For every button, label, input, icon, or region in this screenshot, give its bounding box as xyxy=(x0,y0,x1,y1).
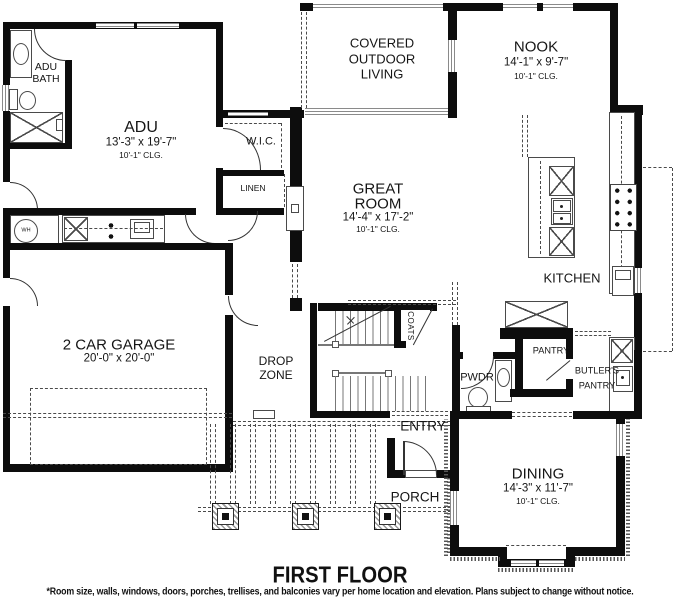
option-dash-right xyxy=(672,168,673,351)
label-adu-bath-1: ADU xyxy=(35,62,57,73)
pantry-cabinet xyxy=(505,301,568,328)
trellis-beam-3 xyxy=(250,424,256,504)
label-entry: ENTRY xyxy=(400,419,446,433)
wall-col-right-upper xyxy=(448,3,457,40)
wall-left-garage xyxy=(3,306,10,466)
fireplace-insert xyxy=(291,204,299,213)
dining-stipple-right xyxy=(626,419,630,556)
window-col-right xyxy=(448,40,457,72)
label-adu: ADU xyxy=(124,120,158,136)
trellis-beam-5 xyxy=(290,424,296,504)
window-nook-2 xyxy=(543,4,573,10)
label-greatroom-clg: 10'-1" CLG. xyxy=(356,225,400,234)
toilet-bowl-adu xyxy=(19,91,36,110)
water-heater-label: WH xyxy=(21,228,30,234)
label-pwdr: PWDR xyxy=(460,373,494,384)
door-arc-hall xyxy=(228,211,258,241)
stair-treads-lower xyxy=(335,376,427,411)
window-adu-top-1 xyxy=(96,23,134,28)
porch-column-3-core xyxy=(384,513,391,520)
door-arc-adu-south xyxy=(185,214,215,244)
window-col-top xyxy=(313,4,444,10)
window-bay-1 xyxy=(511,560,536,566)
trellis-beam-7 xyxy=(330,424,336,504)
wall-bath-right xyxy=(65,60,72,148)
kitchenette-cabinet xyxy=(64,217,88,241)
stair-rail-lower xyxy=(339,372,389,374)
door-arc-adu-bath xyxy=(34,29,66,61)
label-wic: W.I.C. xyxy=(246,137,276,148)
wall-nook-right xyxy=(610,3,618,113)
wall-bath-bottom xyxy=(3,143,72,149)
wall-col-top-left xyxy=(300,3,313,11)
trellis-beam-8 xyxy=(350,424,356,504)
trellis-beam-1 xyxy=(210,424,216,504)
label-dining-clg: 10'-1" CLG. xyxy=(516,497,560,506)
label-nook: NOOK xyxy=(514,40,558,55)
wall-coats-bottom xyxy=(394,341,406,348)
label-linen: LINEN xyxy=(240,184,265,193)
dining-stipple-bay xyxy=(498,568,575,572)
wall-wic-linen-divider xyxy=(223,170,284,176)
label-adu-bath-2: BATH xyxy=(32,74,59,85)
disclaimer-text: *Room size, walls, windows, doors, porch… xyxy=(47,587,634,598)
label-col-1: COVERED xyxy=(350,37,414,50)
sink-drain-2 xyxy=(560,217,563,220)
bath-sink xyxy=(13,43,29,65)
page-title: FIRST FLOOR xyxy=(273,562,408,589)
garage-door-outline xyxy=(30,388,207,465)
opening-dining-cased xyxy=(512,412,572,417)
window-adu-top-2 xyxy=(137,23,179,28)
label-greatroom-dims: 14'-4" x 17'-2" xyxy=(343,212,414,224)
label-dining-dims: 14'-3" x 11'-7" xyxy=(503,483,573,495)
wall-kitchen-right-lower xyxy=(634,293,642,350)
wall-greatroom-west xyxy=(290,107,302,262)
wall-left-upper xyxy=(3,22,10,85)
window-kitchen-right xyxy=(634,268,642,293)
wall-pwdr-left xyxy=(452,325,460,418)
label-col-2: OUTDOOR xyxy=(349,53,415,66)
kitchenette-counter-line xyxy=(64,228,163,229)
wall-pwdr-pantry-divider xyxy=(515,328,523,397)
front-door-leaf xyxy=(403,441,405,475)
opening-greatroom-kitchen xyxy=(452,282,458,325)
opening-kitchen-butlers xyxy=(575,331,611,336)
shower-seat xyxy=(56,119,63,131)
island-cabinet-top xyxy=(549,166,574,196)
label-greatroom-1: GREAT xyxy=(353,182,404,197)
door-arc-adu-entry xyxy=(10,182,38,210)
porch-column-2 xyxy=(292,503,319,530)
label-drop-zone-2: ZONE xyxy=(259,369,292,381)
stair-treads-upper xyxy=(335,311,393,344)
trellis-beam-6 xyxy=(310,424,316,504)
window-dining-right xyxy=(616,424,625,456)
wall-dining-top-right xyxy=(573,411,642,419)
label-dining: DINING xyxy=(512,467,565,482)
wall-hall-stub xyxy=(290,298,302,311)
label-greatroom-2: ROOM xyxy=(355,197,402,212)
window-wall-col-bottom xyxy=(305,108,448,115)
door-arc-garage-side xyxy=(10,278,38,306)
island-cabinet-bottom xyxy=(549,227,574,256)
wall-dining-bottom-right xyxy=(569,547,625,556)
col-open-edge xyxy=(301,12,307,108)
island-center-dash xyxy=(540,161,541,254)
toilet-bowl-pwdr xyxy=(468,387,488,408)
label-drop-zone-1: DROP xyxy=(259,355,294,367)
toilet-tank-adu xyxy=(9,89,18,110)
porch-column-2-core xyxy=(302,513,309,520)
dining-stipple-left xyxy=(444,419,448,556)
door-pantry-angled xyxy=(546,360,570,381)
opening-entry-stairs xyxy=(392,411,448,416)
label-col-3: LIVING xyxy=(361,68,404,81)
opening-hall-greatroom xyxy=(292,264,298,298)
refrigerator-door xyxy=(615,270,631,280)
window-dining-left xyxy=(450,491,459,525)
newel-post-1 xyxy=(332,341,339,348)
wic-shelf-right xyxy=(281,123,282,168)
wall-adu-east-lower xyxy=(216,168,223,215)
wall-butlers-right xyxy=(634,350,642,413)
label-adu-clg: 10'-1" CLG. xyxy=(119,151,163,160)
porch-column-1 xyxy=(212,503,239,530)
label-garage: 2 CAR GARAGE xyxy=(63,338,176,353)
label-porch: PORCH xyxy=(391,490,440,504)
option-dash-top xyxy=(643,167,672,168)
bay-opening-dash xyxy=(506,545,566,546)
sink-drain-1 xyxy=(560,205,563,208)
door-coats-angled xyxy=(413,309,433,346)
pwdr-sink xyxy=(497,368,510,387)
wall-garage-top xyxy=(7,243,233,250)
drop-zone-bench xyxy=(253,410,275,419)
range-cooktop xyxy=(610,184,637,231)
label-pantry: PANTRY xyxy=(533,346,569,355)
porch-column-3 xyxy=(374,503,401,530)
wall-dining-left xyxy=(450,419,459,556)
butlers-sink-drain xyxy=(621,376,624,379)
label-adu-dims: 13'-3" x 19'-7" xyxy=(106,137,177,149)
window-wic-top xyxy=(228,112,268,116)
door-arc-front-entry xyxy=(403,441,437,475)
wall-nook-top-left xyxy=(457,3,503,11)
porch-column-1-core xyxy=(222,513,229,520)
door-arc-wic xyxy=(223,128,261,170)
wall-stairs-left xyxy=(310,303,317,418)
label-kitchen: KITCHEN xyxy=(543,272,600,285)
wall-pwdr-top-right xyxy=(493,352,515,359)
trellis-beam-2 xyxy=(230,424,236,504)
wall-garage-right-upper xyxy=(225,243,233,295)
wall-garage-bottom xyxy=(3,464,233,472)
label-nook-clg: 10'-1" CLG. xyxy=(514,72,558,81)
window-bay-2 xyxy=(539,560,564,566)
label-butlers-2: PANTRY xyxy=(579,381,615,390)
wall-pantry-top xyxy=(500,328,573,339)
dining-stipple-bottom-right xyxy=(575,557,625,561)
dining-stipple-bottom-left xyxy=(450,557,500,561)
opening-greatroom-south xyxy=(348,300,456,305)
stair-rail-upper xyxy=(318,344,394,346)
label-coats: COATS xyxy=(406,311,414,340)
butlers-cabinet xyxy=(611,339,633,363)
kitchenette-cooktop xyxy=(103,220,119,241)
linen-shelf xyxy=(284,174,285,207)
option-dash-bottom xyxy=(643,351,672,352)
trellis-beam-4 xyxy=(270,424,276,504)
opening-nook-kitchen xyxy=(522,115,528,157)
floor-plan: WH xyxy=(0,0,681,600)
wall-adu-south xyxy=(3,208,196,215)
label-butlers-1: BUTLER'S xyxy=(575,366,619,375)
wall-dining-top-left xyxy=(450,411,512,419)
wall-col-right-lower xyxy=(448,72,457,118)
wall-stairs-bottom xyxy=(310,411,390,418)
trellis-beam-9 xyxy=(370,424,376,504)
label-nook-dims: 14'-1" x 9'-7" xyxy=(504,57,568,69)
label-garage-dims: 20'-0" x 20'-0" xyxy=(84,353,155,365)
wall-pantry-bottom xyxy=(510,389,573,397)
window-nook-1 xyxy=(503,4,537,10)
wic-shelf-top xyxy=(225,123,281,124)
